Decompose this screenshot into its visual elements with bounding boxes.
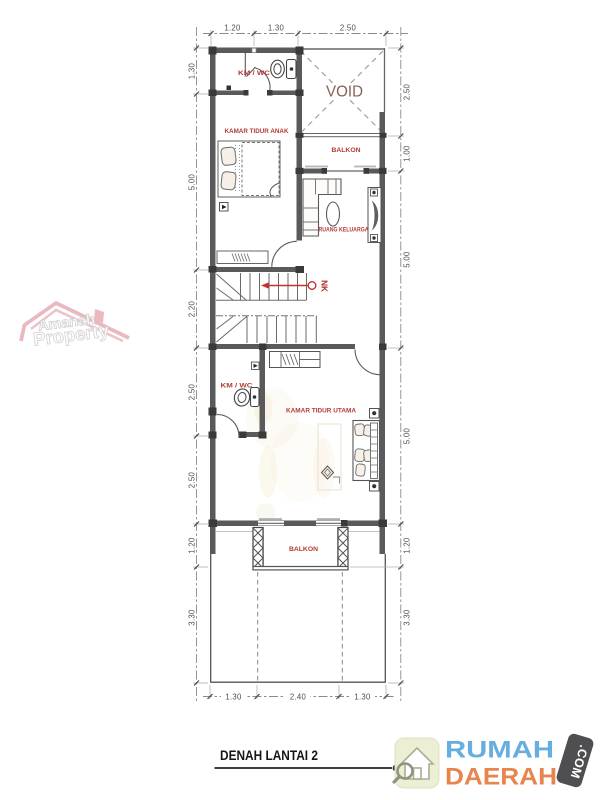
svg-text:1.30: 1.30: [188, 62, 197, 79]
svg-text:1.30: 1.30: [268, 24, 285, 33]
svg-text:KAMAR TIDUR ANAK: KAMAR TIDUR ANAK: [225, 128, 289, 135]
svg-text:3.30: 3.30: [188, 609, 197, 626]
svg-text:2.50: 2.50: [188, 383, 197, 400]
svg-text:5.00: 5.00: [403, 251, 412, 268]
svg-text:3.30: 3.30: [403, 609, 412, 626]
svg-text:DENAH LANTAI 2: DENAH LANTAI 2: [220, 748, 318, 763]
svg-text:5.00: 5.00: [403, 427, 412, 444]
svg-text:DAERAH: DAERAH: [445, 764, 557, 791]
svg-text:2.20: 2.20: [188, 300, 197, 317]
svg-text:KAMAR TIDUR UTAMA: KAMAR TIDUR UTAMA: [286, 408, 356, 415]
svg-text:1.30: 1.30: [225, 693, 242, 702]
svg-text:KM / WC: KM / WC: [221, 383, 253, 390]
svg-text:BALKON: BALKON: [332, 147, 361, 154]
svg-text:VOID: VOID: [326, 84, 363, 101]
svg-text:5.00: 5.00: [188, 173, 197, 190]
svg-text:RUMAH: RUMAH: [445, 737, 554, 764]
svg-text:1.20: 1.20: [188, 537, 197, 554]
svg-text:2.50: 2.50: [403, 83, 412, 100]
svg-text:KM / WC: KM / WC: [238, 70, 270, 77]
svg-text:2.50: 2.50: [340, 24, 357, 33]
svg-text:1.30: 1.30: [354, 693, 371, 702]
svg-text:1.20: 1.20: [403, 537, 412, 554]
svg-text:1.20: 1.20: [224, 24, 241, 33]
svg-text:BALKON: BALKON: [289, 546, 318, 553]
svg-text:2.40: 2.40: [290, 693, 307, 702]
svg-text:NK: NK: [320, 280, 329, 292]
svg-text:1.00: 1.00: [403, 145, 412, 162]
svg-text:2.50: 2.50: [188, 471, 197, 488]
svg-text:RUANG KELUARGA: RUANG KELUARGA: [319, 227, 369, 234]
